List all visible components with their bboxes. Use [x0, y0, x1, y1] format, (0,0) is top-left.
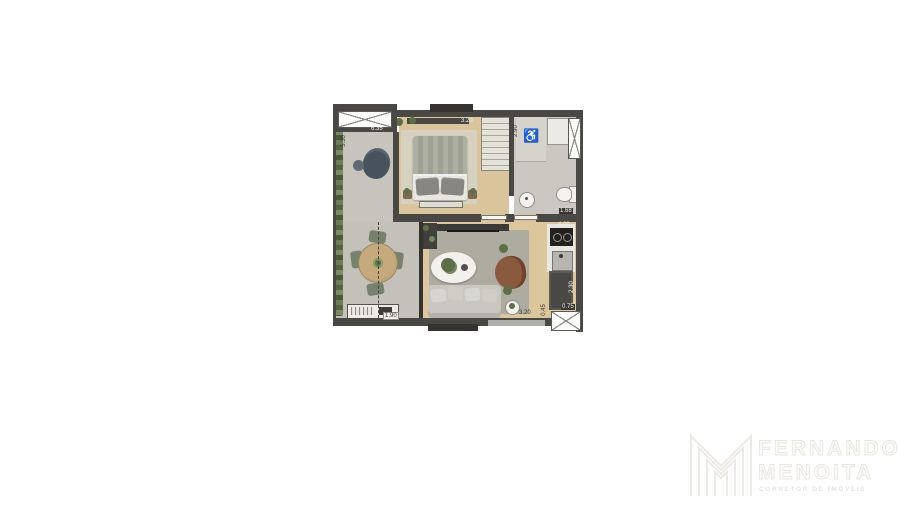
- balcony-console-slats: [351, 307, 373, 315]
- glass-frame-living-balcony: [419, 222, 423, 318]
- dim-living-bottom: 3.20: [519, 310, 531, 316]
- bed-duvet: [413, 136, 467, 176]
- brand-name-line1: FERNANDO: [758, 438, 900, 459]
- wall-bedroom-bathroom: [509, 110, 514, 196]
- wall-left: [333, 104, 336, 326]
- bed-pillow-right: [440, 177, 464, 196]
- dim-dining-bottom: 1.90: [383, 312, 399, 320]
- shaft-hatch-top-right: [568, 118, 581, 159]
- sofa-cushion-2: [448, 286, 464, 300]
- nightstand-plant-right: [470, 188, 476, 194]
- brand-monogram-icon: [688, 428, 754, 500]
- toilet-bowl: [556, 187, 572, 202]
- dim-bedroom-top: 3.20: [461, 118, 473, 124]
- dim-living-bottom-offset: 0.45: [541, 304, 547, 316]
- tv: [447, 230, 499, 232]
- shaft-hatch-top-left: [338, 111, 392, 128]
- cooktop-burner-left: [553, 233, 562, 242]
- dim-kitchen-top: 4.00: [558, 222, 570, 228]
- dim-balcony-top: 6.35: [371, 126, 383, 132]
- coffee-table-plant: [441, 258, 455, 272]
- coffee-table-dish: [461, 264, 468, 271]
- shower-bench: [547, 118, 569, 145]
- wardrobe: [481, 117, 510, 171]
- dim-counter-bottom: 0.75: [561, 304, 575, 310]
- dresser-plant: [409, 117, 416, 124]
- brand-subtitle: CORRETOR DE IMÓVEIS: [759, 486, 866, 493]
- sofa-cushion-1: [430, 288, 446, 302]
- wall-top-tab: [430, 104, 473, 112]
- canvas: ♿: [0, 0, 900, 506]
- shelf-plant-1: [423, 225, 429, 231]
- shelf-plant-2: [429, 236, 435, 242]
- glass-line-dashed: [378, 222, 379, 318]
- bathroom-sink: [519, 192, 535, 208]
- brand-watermark: FERNANDO MENOITA CORRETOR DE IMÓVEIS: [670, 424, 890, 504]
- floor-plan: ♿: [333, 104, 583, 332]
- wall-balcony-bedroom: [393, 132, 399, 222]
- nightstand-plant-left: [404, 188, 410, 194]
- bedroom-dresser: [407, 118, 469, 124]
- brand-name-line2: MENOITA: [758, 462, 874, 483]
- shaft-hatch-bottom-right: [551, 311, 581, 331]
- lounge-ottoman: [353, 160, 364, 171]
- dim-counter-right: 2.30: [569, 281, 575, 293]
- wall-bottom-tab-dark: [428, 324, 478, 331]
- wall-top: [397, 110, 583, 117]
- kitchen-faucet: [559, 254, 563, 258]
- cooktop-burner-right: [563, 233, 572, 242]
- bedroom-door: [481, 215, 507, 220]
- dim-bathroom-bottom: 1.68: [559, 208, 573, 214]
- wall-bathroom-kitchen: [536, 214, 583, 222]
- dim-bathroom-left: 2.90: [513, 125, 519, 137]
- wall-bedroom-living-a: [393, 214, 481, 222]
- plant-by-sofa: [503, 286, 512, 295]
- dim-balcony-left: 5.30: [341, 135, 347, 147]
- wall-bottom-tab-light: [488, 320, 545, 326]
- plant-by-armchair: [499, 244, 508, 253]
- accessibility-icon: ♿: [523, 128, 539, 144]
- sofa-cushion-3: [465, 287, 481, 301]
- bed-pillow-left: [415, 177, 439, 196]
- bathroom-door: [514, 215, 538, 220]
- bathroom-sink-drain: [525, 197, 528, 200]
- sofa-cushion-4: [481, 288, 497, 302]
- side-table-plant: [509, 303, 515, 309]
- bed-bench: [419, 201, 463, 208]
